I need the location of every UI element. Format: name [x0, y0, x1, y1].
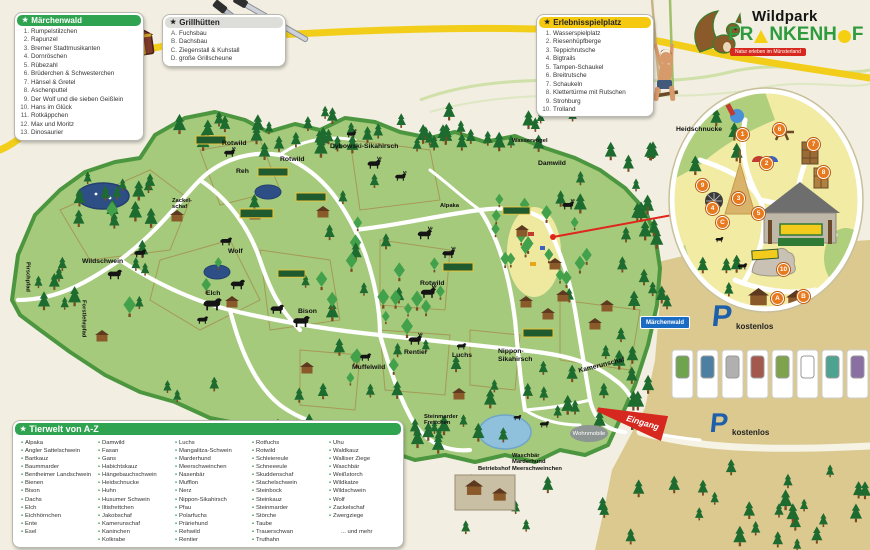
list-item: •Jakobschaf	[96, 512, 170, 520]
playground-badge: 6	[773, 123, 786, 136]
list-item: •Nasenbär	[173, 471, 247, 479]
legend-grillhuetten-header: ★ Grillhütten	[165, 17, 283, 28]
label-pirschpfad: Pirschpfad	[24, 262, 30, 292]
list-item: •Heidschnucke	[96, 479, 170, 487]
logo-text-part: NKENH	[769, 25, 837, 44]
label-alpaka: Alpaka	[440, 203, 459, 209]
label-luchs: Luchs	[452, 352, 472, 360]
label-rotwild: Rotwild	[222, 140, 247, 148]
logo-frankenhof-text: FR NKENH F	[728, 25, 864, 44]
star-icon: ★	[544, 19, 550, 26]
maerchenwald-sign: Märchenwald	[640, 316, 690, 329]
list-item: 3.Bremer Stadtmusikanten	[17, 45, 141, 53]
playground-badge: 1	[736, 128, 749, 141]
betriebshof-yard	[455, 475, 515, 510]
list-item: •Huhn	[96, 487, 170, 495]
star-icon: ★	[20, 426, 26, 433]
list-item: •Luchs	[173, 439, 247, 447]
label-rentier: Rentier	[404, 349, 427, 357]
list-item: 12.Max und Moritz	[17, 121, 141, 129]
list-item: •Waschbär	[327, 463, 391, 471]
star-icon: ★	[22, 17, 28, 24]
logo-text-part: F	[852, 25, 864, 44]
list-item: •Pfau	[173, 504, 247, 512]
wohnmobile-sign: Wohnmobile	[570, 425, 608, 442]
label-wasservoegel: Wasservögel	[512, 138, 548, 144]
label-wolf: Wolf	[228, 248, 243, 256]
list-item: •Steinmarder	[250, 504, 324, 512]
tierwelt-col-1: •Alpaka•Angler Sattelschwein•Bartkauz•Ba…	[19, 439, 93, 544]
playground-badge: 2	[760, 157, 773, 170]
list-item: •Kamerunschaf	[96, 520, 170, 528]
label-damwild: Damwild	[538, 160, 566, 168]
list-item: •Truthahn	[250, 536, 324, 544]
legend-tierwelt: ★ Tierwelt von A-Z •Alpaka•Angler Sattel…	[12, 420, 404, 548]
logo-tagline: Natur erleben im Münsterland	[730, 48, 806, 56]
list-item: •Marderhund	[173, 455, 247, 463]
label-reh: Reh	[236, 168, 249, 176]
list-item: •Rotwild	[250, 447, 324, 455]
list-item: 4.Dornröschen	[17, 53, 141, 61]
playground-badge: C	[716, 216, 729, 229]
label-line: Frettchen	[424, 420, 458, 426]
list-item: 7.Schaukeln	[539, 81, 651, 89]
list-item: 10.Hans im Glück	[17, 104, 141, 112]
playground-badge: 5	[752, 207, 765, 220]
list-item: •Bentheimer Landschwein	[19, 471, 93, 479]
list-item: •Baummarder	[19, 463, 93, 471]
list-item: •Bartkauz	[19, 455, 93, 463]
list-item: •Präriehund	[173, 520, 247, 528]
list-item: •Mufflon	[173, 479, 247, 487]
parking-p-icon: P	[710, 302, 733, 332]
label-waschbaer-marderhund: Waschbär Marderhund Meerschweinchen	[512, 453, 562, 472]
label-rotwild: Rotwild	[420, 280, 445, 288]
logo-wildpark-text: Wildpark	[752, 8, 818, 25]
list-item: •Iltisfrettchen	[96, 504, 170, 512]
list-item: •Steinbock	[250, 487, 324, 495]
label-bison: Bison	[298, 308, 317, 316]
legend-grillhuetten: ★ Grillhütten A.FuchsbauB.DachsbauC.Zieg…	[162, 14, 286, 67]
list-item: 5.Tampen-Schaukel	[539, 64, 651, 72]
label-rotwild: Rotwild	[280, 156, 305, 164]
list-item: 8.Aschenputtel	[17, 87, 141, 95]
list-item: •Husumer Schwein	[96, 496, 170, 504]
legend-title: Erlebnisspielplatz	[553, 18, 621, 27]
list-item: •Rentier	[173, 536, 247, 544]
tierwelt-col-2: •Damwild•Fasan•Gans•Habichtskauz•Hängeba…	[96, 439, 170, 544]
list-item: 4.Bigtrails	[539, 55, 651, 63]
playground-badge: 4	[706, 202, 719, 215]
list-item: A.Fuchsbau	[165, 30, 283, 38]
label-line: Nippon-	[498, 348, 532, 356]
legend-maerchenwald-list: 1.Rumpelstilzchen2.Rapunzel3.Bremer Stad…	[17, 28, 141, 138]
list-item: •Schneeeule	[250, 463, 324, 471]
list-item: 11.Rotkäppchen	[17, 112, 141, 120]
list-item: 3.Teppichrutsche	[539, 47, 651, 55]
list-item: •Meerschweinchen	[173, 463, 247, 471]
list-item: •Trauerschwan	[250, 528, 324, 536]
legend-grillhuetten-list: A.FuchsbauB.DachsbauC.Ziegenstall & Kuhs…	[165, 30, 283, 64]
tierwelt-col-4: •Rotfuchs•Rotwild•Schleiereule•Schneeeul…	[250, 439, 324, 544]
label-line: Sikahirsch	[498, 356, 532, 364]
wildpark-frankenhof-logo: Wildpark FR NKENH F Natur erleben im Mün…	[688, 6, 868, 68]
list-item: •Eichhörnchen	[19, 512, 93, 520]
label-line: Meerschweinchen	[512, 466, 562, 472]
list-item: •Schleiereule	[250, 455, 324, 463]
parking-p-icon: P	[709, 410, 730, 437]
list-item: •Angler Sattelschwein	[19, 447, 93, 455]
list-item: •Dachs	[19, 496, 93, 504]
list-item: 6.Brüderchen & Schwesterchen	[17, 70, 141, 78]
parking-kostenlos-label: kostenlos	[732, 428, 769, 437]
label-dybowski-sikahirsch: Dybowski-Sikahirsch	[330, 143, 398, 151]
logo-text-part: FR	[728, 25, 753, 44]
list-item: •Fasan	[96, 447, 170, 455]
label-zackelschaf: Zackel- schaf	[172, 198, 192, 211]
list-item: 9.Der Wolf und die sieben Geißlein	[17, 96, 141, 104]
list-item: •Mangalitza-Schwein	[173, 447, 247, 455]
list-item: •Gans	[96, 455, 170, 463]
legend-title: Märchenwald	[31, 16, 82, 25]
list-item: 7.Hänsel & Gretel	[17, 79, 141, 87]
playground-badge: 10	[777, 263, 790, 276]
label-heidschnucke: Heidschnucke	[676, 126, 722, 134]
list-item: 1.Rumpelstilzchen	[17, 28, 141, 36]
playground-badge: 7	[807, 138, 820, 151]
list-item: •Wildschwein	[327, 487, 391, 495]
legend-maerchenwald: ★ Märchenwald 1.Rumpelstilzchen2.Rapunze…	[14, 12, 144, 141]
list-item: •Damwild	[96, 439, 170, 447]
legend-spielplatz-header: ★ Erlebnisspielplatz	[539, 17, 651, 28]
label-wildschwein: Wildschwein	[82, 258, 123, 266]
list-item: 9.Strohburg	[539, 98, 651, 106]
yellow-triangle-icon	[754, 30, 768, 43]
playground-badge: B	[797, 290, 810, 303]
yellow-circle-icon	[838, 30, 851, 43]
list-item: •Hängebauchschwein	[96, 471, 170, 479]
list-item: •Rotfuchs	[250, 439, 324, 447]
list-item: •Zwergziege	[327, 512, 391, 520]
list-item: •Kolkrabe	[96, 536, 170, 544]
list-item: 8.Klettertürme mit Rutschen	[539, 89, 651, 97]
list-item: D.große Grillscheune	[165, 55, 283, 63]
list-item: •Rehwild	[173, 528, 247, 536]
list-item: •Elch	[19, 504, 93, 512]
playground-badge: 9	[696, 179, 709, 192]
list-item: •Ente	[19, 520, 93, 528]
label-betriebshof: Betriebshof	[478, 466, 510, 472]
star-icon: ★	[170, 19, 176, 26]
list-item: 13.Dinosaurier	[17, 129, 141, 137]
legend-spielplatz-list: 1.Wasserspielplatz2.Riesenhüpfberge3.Tep…	[539, 30, 651, 114]
tierwelt-more: ... und mehr	[341, 529, 372, 535]
list-item: •Steinkauz	[250, 496, 324, 504]
list-item: •Habichtskauz	[96, 463, 170, 471]
label-nippon-sikahirsch: Nippon- Sikahirsch	[498, 348, 532, 363]
list-item: 10.Trolland	[539, 106, 651, 114]
list-item: •Störche	[250, 512, 324, 520]
list-item: •Nippon-Sikahirsch	[173, 496, 247, 504]
label-steinmarder-frettchen: Steinmarder Frettchen	[424, 414, 458, 427]
list-item: •Walliser Ziege	[327, 455, 391, 463]
tierwelt-columns: •Alpaka•Angler Sattelschwein•Bartkauz•Ba…	[15, 437, 401, 544]
legend-title: Grillhütten	[179, 18, 219, 27]
list-item: •Taube	[250, 520, 324, 528]
list-item: C.Ziegenstall & Kuhstall	[165, 47, 283, 55]
playground-badge: 8	[817, 166, 830, 179]
parking-kostenlos-label: kostenlos	[736, 322, 773, 331]
list-item: •Esel	[19, 528, 93, 536]
list-item: •Kaninchen	[96, 528, 170, 536]
list-item: •Stachelschwein	[250, 479, 324, 487]
legend-tierwelt-header: ★ Tierwelt von A-Z	[15, 423, 401, 435]
legend-maerchenwald-header: ★ Märchenwald	[17, 15, 141, 26]
wildpark-map-page: ★ Märchenwald 1.Rumpelstilzchen2.Rapunze…	[0, 0, 870, 550]
list-item: •Skuddenschaf	[250, 471, 324, 479]
list-item: •Uhu	[327, 439, 391, 447]
label-muffelwild: Muffelwild	[352, 364, 385, 372]
list-item: •Wolf	[327, 496, 391, 504]
boy-on-swing-photo	[652, 0, 678, 101]
list-item: B.Dachsbau	[165, 38, 283, 46]
playground-badge: 3	[732, 192, 745, 205]
list-item: 6.Breitrutsche	[539, 72, 651, 80]
list-item: •Bison	[19, 487, 93, 495]
playground-area-patch	[507, 207, 561, 297]
label-forstlehrpfad: Forstlehrpfad	[80, 300, 86, 337]
legend-title: Tierwelt von A-Z	[29, 424, 99, 434]
list-item: •Waldkauz	[327, 447, 391, 455]
list-item: •Wildkatze	[327, 479, 391, 487]
playground-badge: A	[771, 292, 784, 305]
list-item: 2.Riesenhüpfberge	[539, 38, 651, 46]
label-elch: Elch	[206, 290, 220, 298]
tierwelt-col-3: •Luchs•Mangalitza-Schwein•Marderhund•Mee…	[173, 439, 247, 544]
list-item: 1.Wasserspielplatz	[539, 30, 651, 38]
list-item: 5.Rübezahl	[17, 62, 141, 70]
list-item: •Alpaka	[19, 439, 93, 447]
list-item: •Polarfuchs	[173, 512, 247, 520]
list-item: •Nerz	[173, 487, 247, 495]
list-item: 2.Rapunzel	[17, 36, 141, 44]
label-line: schaf	[172, 204, 192, 210]
list-item: •Weißstorch	[327, 471, 391, 479]
list-item: •Bienen	[19, 479, 93, 487]
list-item: •Zackelschaf	[327, 504, 391, 512]
legend-spielplatz: ★ Erlebnisspielplatz 1.Wasserspielplatz2…	[536, 14, 654, 117]
